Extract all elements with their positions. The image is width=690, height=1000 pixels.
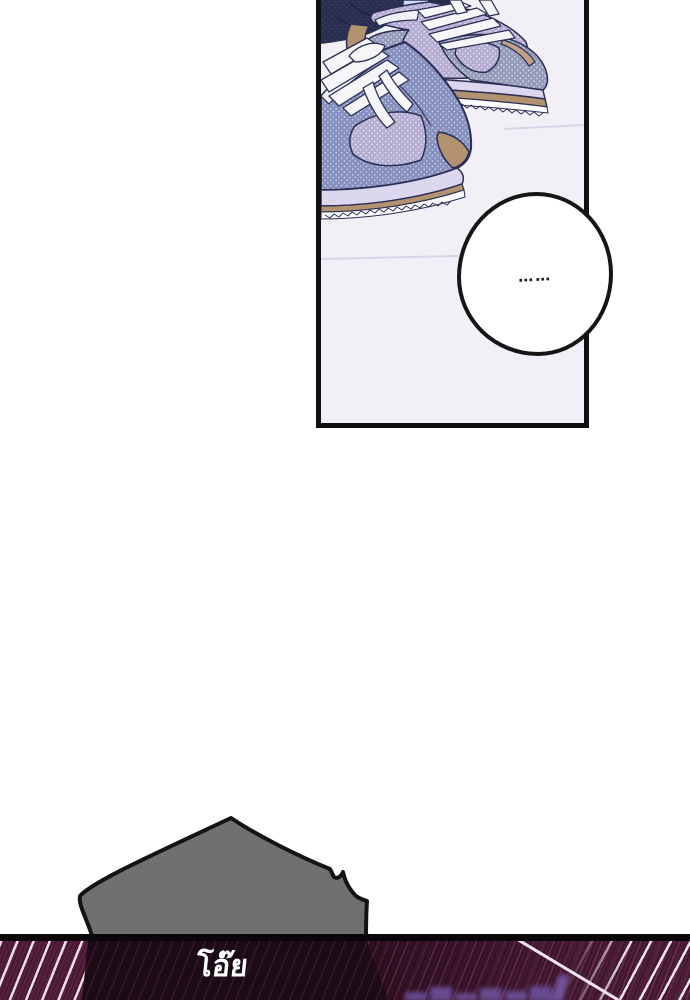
blanket-lump xyxy=(60,800,382,942)
speech-bubble-text: …… xyxy=(518,266,553,286)
speech-bubble: …… xyxy=(457,192,613,356)
webtoon-page: …… โอ๊ย xyxy=(0,0,690,1000)
sfx-text: โอ๊ย xyxy=(194,944,251,991)
impact-strip: โอ๊ย xyxy=(0,941,690,1000)
purple-sfx-glow xyxy=(405,983,581,1000)
floor-divider-line xyxy=(0,934,690,941)
blanket-lump-shape xyxy=(80,818,367,940)
